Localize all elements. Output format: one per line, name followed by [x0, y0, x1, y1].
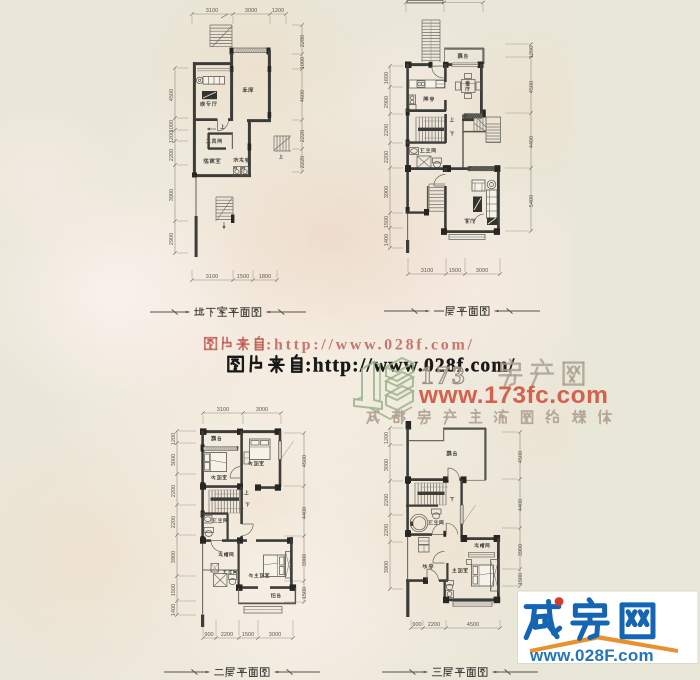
svg-text:3000: 3000: [384, 459, 390, 471]
svg-text:3900: 3900: [384, 561, 390, 573]
svg-text:3900: 3900: [171, 551, 177, 563]
svg-text:2200: 2200: [384, 524, 390, 536]
svg-text:1500: 1500: [384, 216, 390, 228]
svg-text:1600: 1600: [384, 72, 390, 84]
svg-text:3100: 3100: [421, 268, 433, 274]
svg-text::http://www.028f.com/: :http://www.028f.com/: [266, 337, 475, 354]
svg-text:2200: 2200: [384, 124, 390, 136]
svg-text:www.173fc.com: www.173fc.com: [418, 382, 608, 409]
svg-text:1500: 1500: [171, 584, 177, 596]
svg-text:5400: 5400: [529, 195, 535, 207]
svg-text:4600: 4600: [300, 90, 306, 102]
svg-text:2200: 2200: [171, 485, 177, 497]
svg-text:2200: 2200: [221, 632, 233, 638]
svg-text:2200: 2200: [171, 516, 177, 528]
svg-text:1200: 1200: [171, 433, 177, 445]
svg-text:2200: 2200: [384, 494, 390, 506]
svg-text:3900: 3900: [302, 554, 308, 566]
svg-text:3100: 3100: [206, 8, 218, 14]
svg-text:3000: 3000: [269, 632, 281, 638]
svg-text:3000: 3000: [171, 454, 177, 466]
svg-text:4500: 4500: [467, 622, 479, 628]
svg-text:2900: 2900: [169, 233, 175, 245]
svg-text:1500: 1500: [302, 587, 308, 599]
svg-text:4500: 4500: [518, 451, 524, 463]
svg-text:1200: 1200: [384, 432, 390, 444]
svg-text:1200: 1200: [529, 46, 535, 58]
svg-text:2220: 2220: [300, 130, 306, 142]
svg-text:3000: 3000: [245, 8, 257, 14]
svg-text:1200: 1200: [169, 131, 175, 143]
svg-text:2900: 2900: [384, 96, 390, 108]
svg-text:4400: 4400: [529, 136, 535, 148]
svg-text:1000: 1000: [300, 57, 306, 69]
svg-text:4500: 4500: [169, 89, 175, 101]
svg-text:3900: 3900: [518, 544, 524, 556]
svg-text:1400: 1400: [171, 604, 177, 616]
svg-text:2200: 2200: [169, 149, 175, 161]
svg-text:3900: 3900: [169, 189, 175, 201]
svg-text:2220: 2220: [300, 156, 306, 168]
svg-text:1800: 1800: [259, 274, 271, 280]
svg-text:4500: 4500: [302, 455, 308, 467]
svg-text:www.028F.com: www.028F.com: [529, 646, 654, 665]
svg-text:1500: 1500: [449, 268, 461, 274]
svg-text:2280: 2280: [300, 35, 306, 47]
svg-text:1000: 1000: [169, 120, 175, 132]
svg-text:1500: 1500: [237, 274, 249, 280]
svg-text:4500: 4500: [529, 81, 535, 93]
svg-text:1200: 1200: [272, 8, 284, 14]
svg-text:900: 900: [412, 622, 421, 628]
svg-text:2200: 2200: [384, 151, 390, 163]
svg-text:3000: 3000: [476, 268, 488, 274]
svg-text:1400: 1400: [384, 234, 390, 246]
svg-text:2200: 2200: [428, 622, 440, 628]
svg-text:4400: 4400: [518, 499, 524, 511]
svg-text:3000: 3000: [256, 407, 268, 413]
svg-text:4400: 4400: [302, 507, 308, 519]
svg-text:1500: 1500: [518, 573, 524, 585]
svg-text:900: 900: [204, 632, 213, 638]
svg-text:3100: 3100: [206, 274, 218, 280]
svg-text:1500: 1500: [242, 632, 254, 638]
svg-text:3100: 3100: [217, 407, 229, 413]
svg-text:3900: 3900: [384, 186, 390, 198]
